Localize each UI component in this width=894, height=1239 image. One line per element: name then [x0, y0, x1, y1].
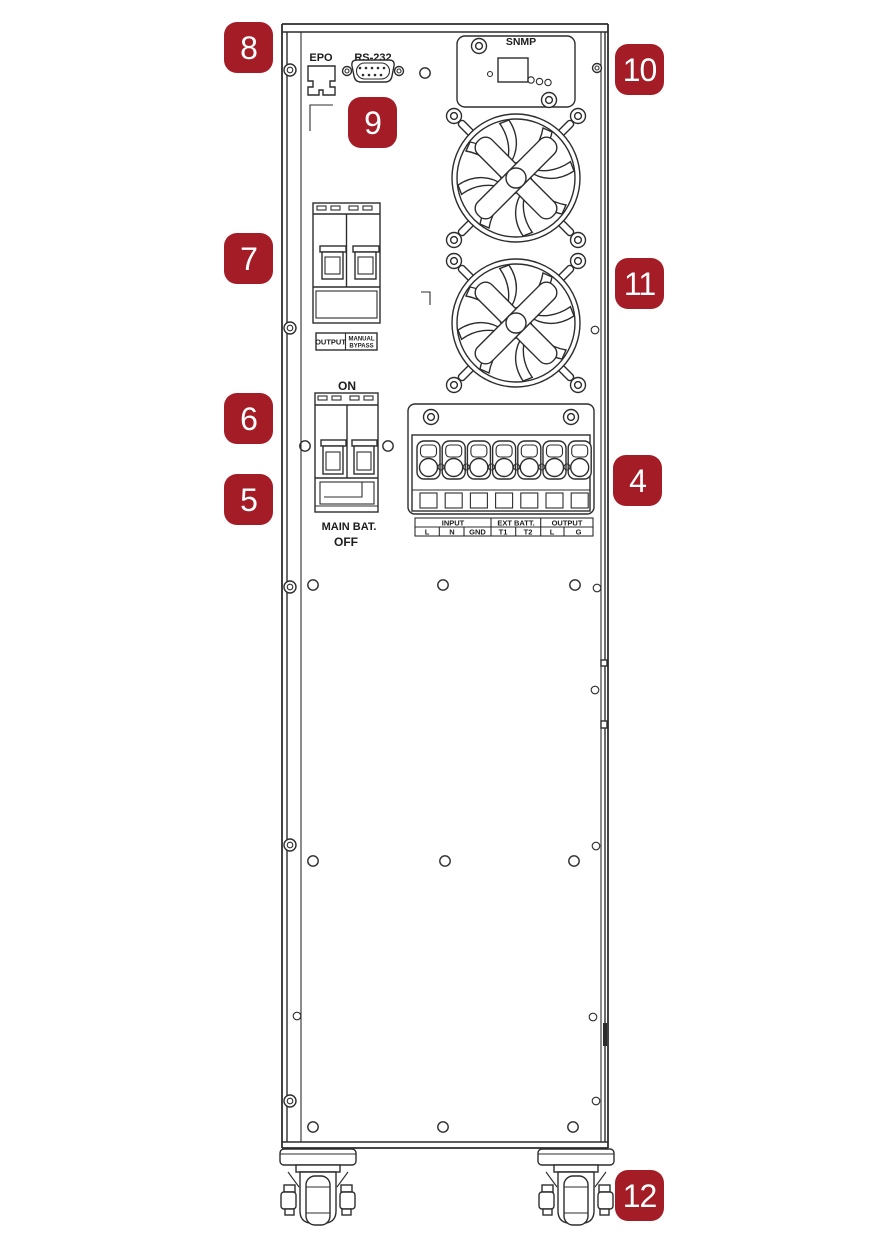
- callout-number: 5: [240, 484, 257, 516]
- bypass-label-line2: BYPASS: [349, 344, 373, 350]
- terminal-pin-label: T2: [524, 528, 533, 537]
- callout-7: 7: [224, 233, 273, 284]
- terminal-lug[interactable]: [417, 441, 440, 479]
- callout-number: 8: [240, 32, 257, 64]
- callout-5: 5: [224, 474, 273, 525]
- terminal-lug[interactable]: [467, 441, 490, 479]
- output-breaker-label: OUTPUT: [315, 338, 346, 347]
- right-edge-notch: [601, 660, 607, 666]
- epo-jack-icon: [308, 66, 335, 95]
- terminal-group-label: EXT BATT.: [497, 519, 534, 528]
- snmp-label: SNMP: [506, 36, 536, 48]
- corner-mark: [421, 292, 430, 305]
- terminal-lug[interactable]: [543, 441, 566, 479]
- corner-mark: [310, 105, 333, 131]
- output-breaker: OUTPUT MANUAL BYPASS: [313, 203, 380, 350]
- callout-number: 12: [623, 1180, 657, 1212]
- ups-rear-panel-diagram: EPO RS-232 SNMP: [0, 0, 894, 1239]
- breaker-off-label: OFF: [334, 535, 358, 549]
- ups-line-art: EPO RS-232 SNMP: [0, 0, 894, 1239]
- output-breaker-label-plate: OUTPUT MANUAL BYPASS: [315, 333, 377, 350]
- breaker-toggle[interactable]: [352, 440, 377, 474]
- terminal-pin-label: L: [425, 528, 430, 537]
- terminal-group-label: INPUT: [442, 519, 465, 528]
- caster-right: [538, 1149, 614, 1225]
- breaker-toggle[interactable]: [320, 246, 346, 279]
- bypass-label-line1: MANUAL: [349, 337, 375, 343]
- rs232-port: RS-232: [343, 52, 404, 82]
- terminal-group-label: OUTPUT: [552, 519, 583, 528]
- right-edge-hinge-bar: [603, 1023, 607, 1046]
- terminal-pin-label: T1: [499, 528, 508, 537]
- terminal-pin-label: N: [449, 528, 454, 537]
- terminal-lug[interactable]: [568, 441, 591, 479]
- breaker-toggle[interactable]: [321, 440, 346, 474]
- callout-number: 9: [364, 107, 381, 139]
- callout-9: 9: [348, 97, 397, 148]
- lug-lower-sections: [420, 493, 588, 508]
- terminal-lug[interactable]: [518, 441, 541, 479]
- battery-breaker: ON MAIN BAT. OFF: [315, 379, 378, 549]
- callout-10: 10: [615, 44, 664, 95]
- callout-11: 11: [615, 258, 664, 309]
- breaker-name-label: MAIN BAT.: [322, 521, 377, 533]
- fan-bottom: [447, 254, 586, 393]
- callout-number: 10: [623, 54, 657, 86]
- callout-number: 4: [629, 465, 646, 497]
- terminal-pin-label: GND: [469, 528, 486, 537]
- terminal-pin-label: G: [576, 528, 582, 537]
- caster-left: [280, 1149, 356, 1225]
- breaker-toggle[interactable]: [353, 246, 379, 279]
- breaker-on-label: ON: [338, 379, 356, 393]
- right-edge-notch: [601, 721, 607, 728]
- terminal-lug[interactable]: [493, 441, 516, 479]
- terminal-block: INPUT EXT BATT. OUTPUT L N GND T1 T2 L G: [408, 404, 594, 537]
- snmp-slot: SNMP: [457, 36, 575, 108]
- epo-label: EPO: [309, 52, 333, 64]
- callout-number: 6: [240, 403, 257, 435]
- callout-6: 6: [224, 393, 273, 444]
- callout-12: 12: [615, 1170, 664, 1221]
- fan-top: [447, 109, 586, 248]
- epo-connector: EPO: [308, 52, 335, 95]
- callout-number: 11: [624, 268, 655, 300]
- terminal-label-table: INPUT EXT BATT. OUTPUT L N GND T1 T2 L G: [415, 518, 593, 537]
- terminal-lug[interactable]: [442, 441, 465, 479]
- callout-8: 8: [224, 22, 273, 73]
- callout-number: 7: [240, 243, 257, 275]
- terminal-pin-label: L: [550, 528, 555, 537]
- callout-4: 4: [613, 455, 662, 506]
